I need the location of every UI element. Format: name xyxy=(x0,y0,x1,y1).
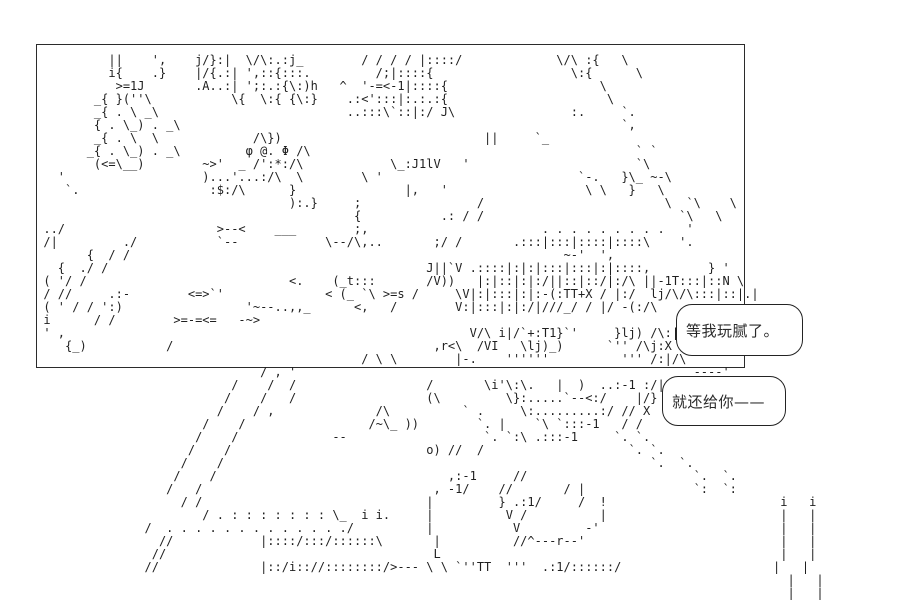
speech-bubble-1-text: 等我玩腻了。 xyxy=(677,320,779,341)
speech-bubble-1: 等我玩腻了。 xyxy=(676,304,803,356)
speech-bubble-2: 就还给你—— xyxy=(662,376,786,426)
aa-comic-panel: || ', j/}:| \/\:.:j_ / / / / |::::/ \/\ … xyxy=(0,0,916,604)
ascii-art: || ', j/}:| \/\:.:j_ / / / / |::::/ \/\ … xyxy=(0,2,824,600)
speech-bubble-2-text: 就还给你—— xyxy=(663,391,765,412)
